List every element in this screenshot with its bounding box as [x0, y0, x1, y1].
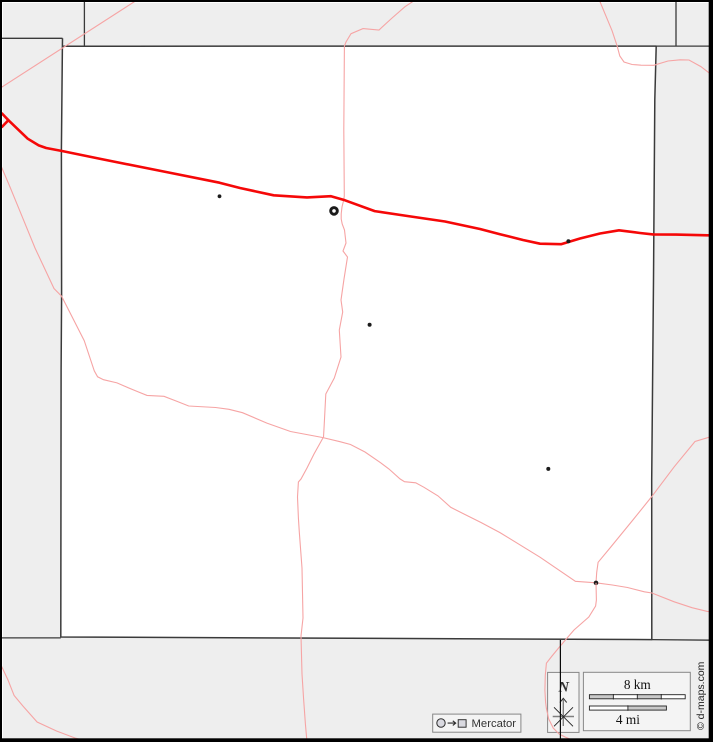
svg-text:© d-maps.com: © d-maps.com [695, 661, 707, 730]
svg-text:Mercator: Mercator [472, 718, 517, 730]
svg-text:8 km: 8 km [624, 677, 652, 692]
svg-text:4 mi: 4 mi [616, 712, 640, 727]
svg-text:N: N [558, 680, 570, 696]
